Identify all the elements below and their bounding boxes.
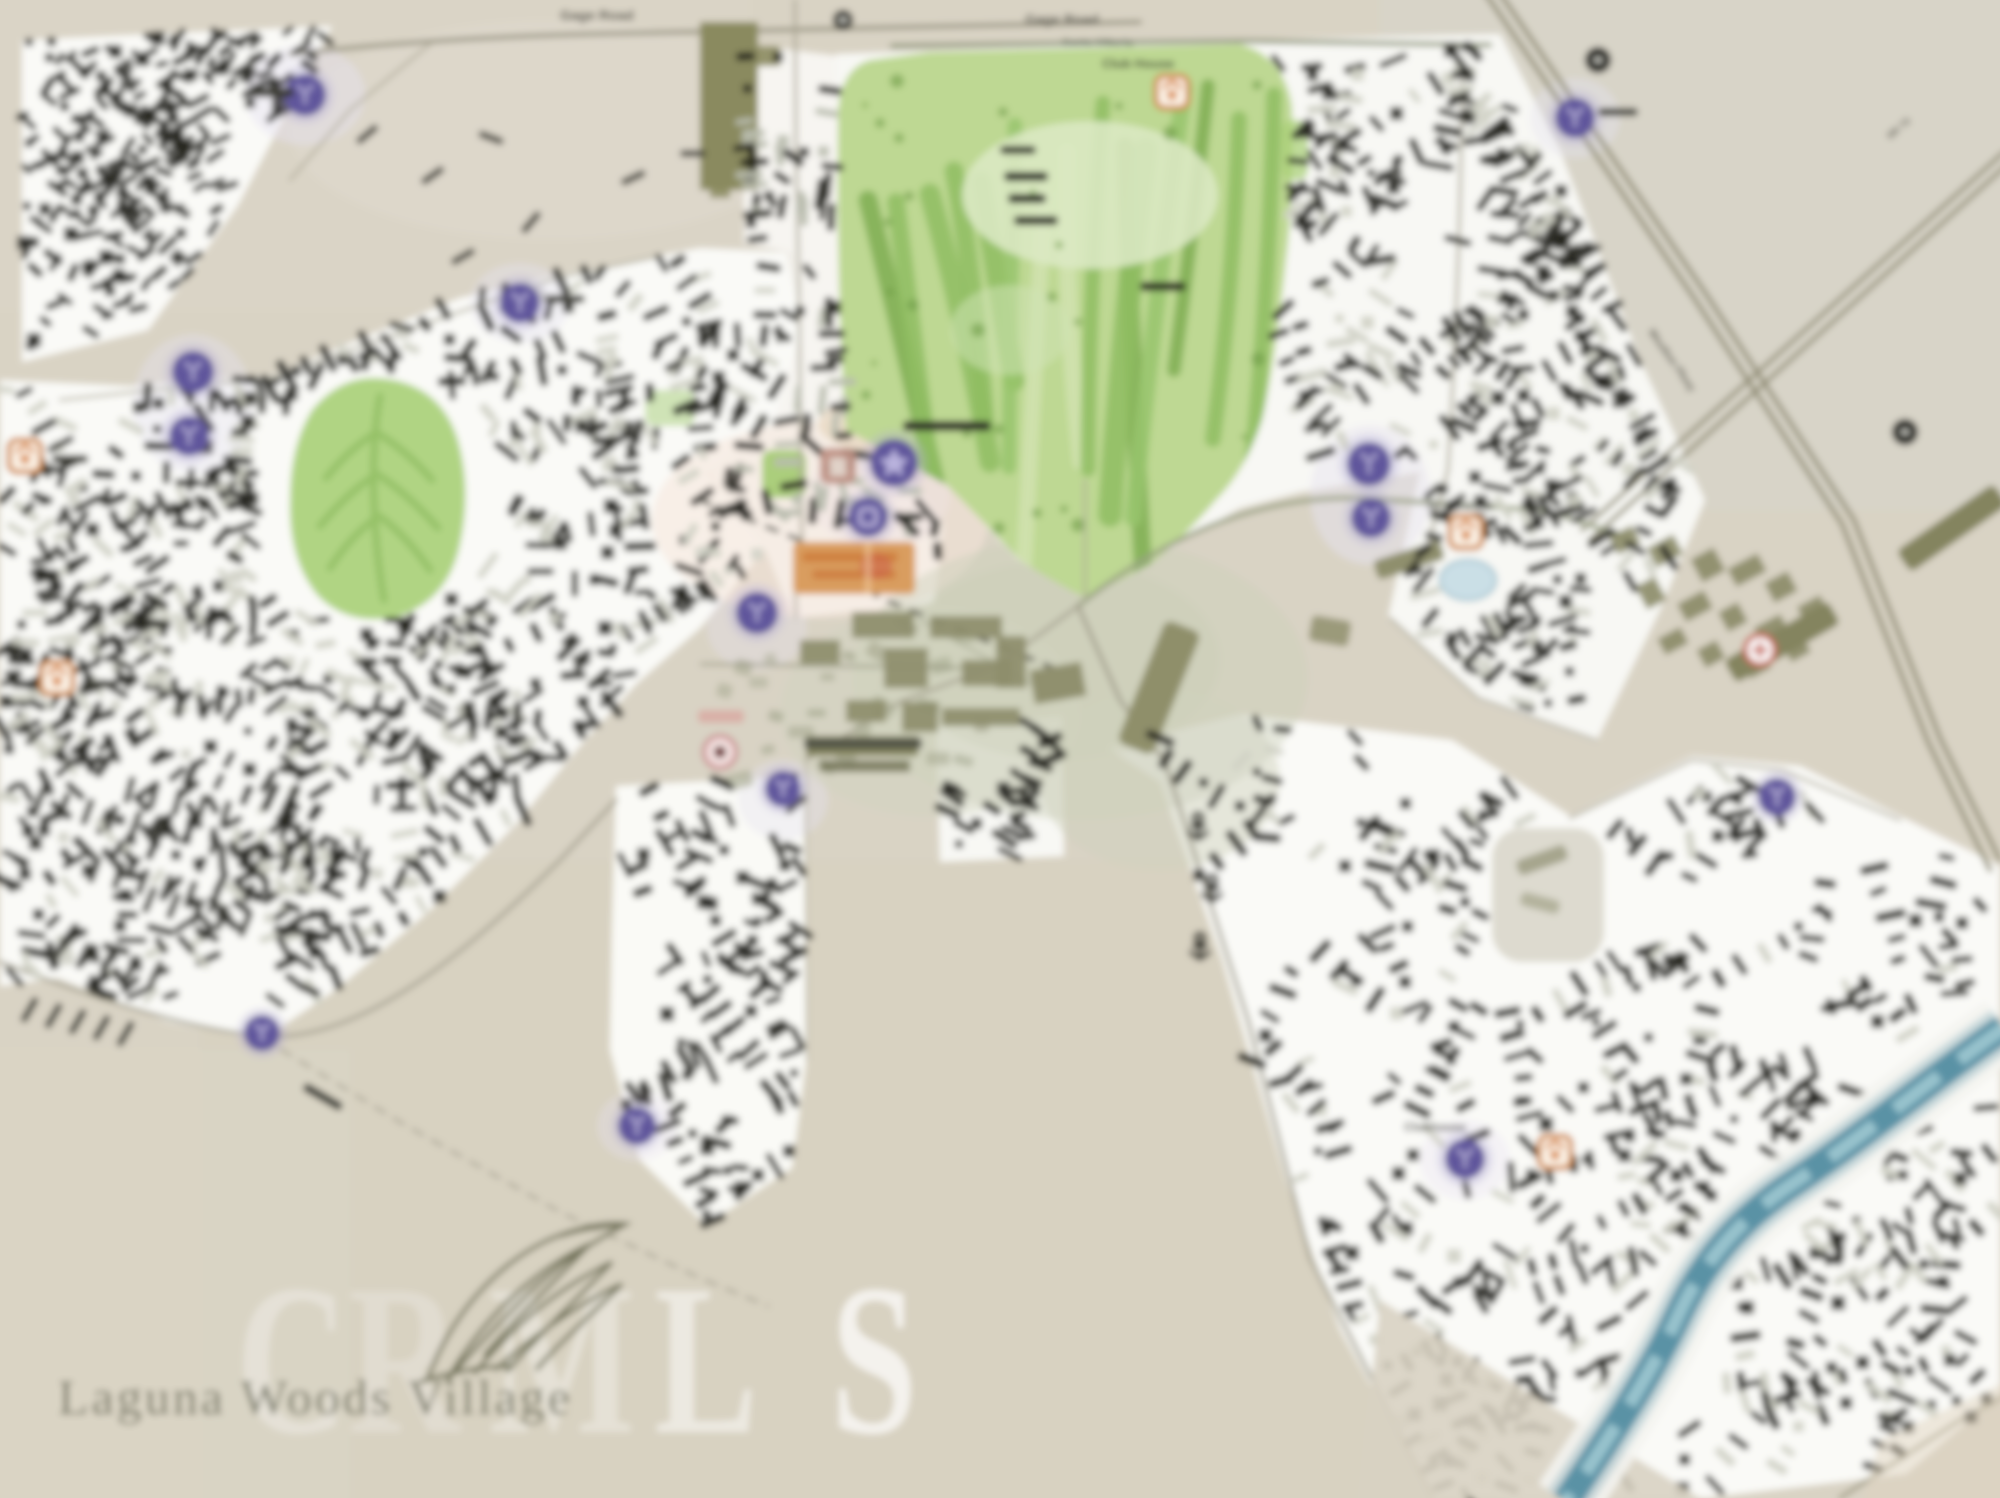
svg-text:C: C — [236, 1240, 348, 1479]
svg-text:R: R — [348, 1240, 461, 1479]
svg-text:Santa Vittoria: Santa Vittoria — [1062, 37, 1134, 49]
svg-text:M: M — [489, 1240, 635, 1479]
svg-text:Gage Road: Gage Road — [1025, 11, 1099, 27]
svg-text:Clubhouse: Clubhouse — [1404, 1120, 1466, 1134]
svg-text:L: L — [654, 1240, 757, 1479]
svg-text:Laguna Woods Village: Laguna Woods Village — [58, 1369, 573, 1425]
svg-text:Gage Road: Gage Road — [560, 7, 634, 23]
svg-text:S: S — [831, 1240, 917, 1479]
svg-text:El Toro Rd: El Toro Rd — [1428, 498, 1493, 513]
svg-text:Club House: Club House — [1102, 56, 1174, 71]
